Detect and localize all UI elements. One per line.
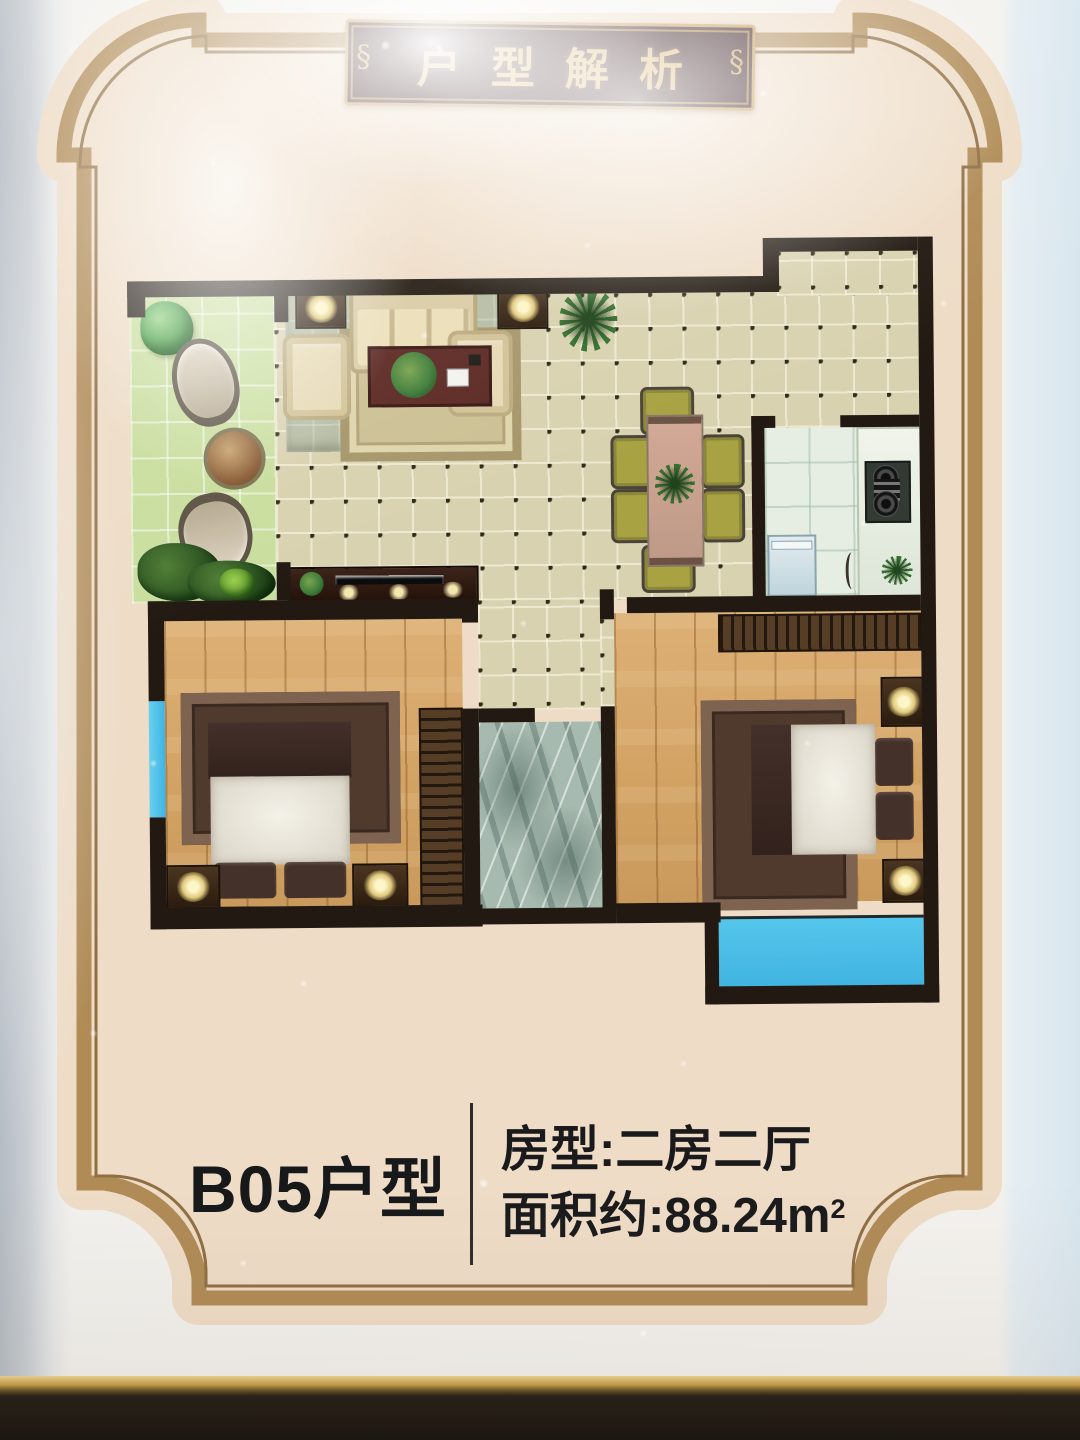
wall xyxy=(705,984,939,1004)
nightstand-lamp xyxy=(882,859,927,903)
floor-plan xyxy=(127,224,940,1015)
wall xyxy=(627,595,921,614)
armchair xyxy=(282,334,351,421)
burner xyxy=(873,491,899,517)
wall xyxy=(127,281,145,317)
plan-specs: 房型:二房二厅 面积约:88.24m2 xyxy=(479,1118,846,1249)
door-swing xyxy=(845,552,858,589)
coffee-table xyxy=(368,345,493,407)
glow xyxy=(388,584,410,600)
glow xyxy=(442,582,464,598)
wall xyxy=(600,589,614,619)
table-items xyxy=(469,354,481,365)
banner-scroll-left-icon: § xyxy=(356,42,371,72)
wall xyxy=(150,904,482,929)
television xyxy=(336,575,444,585)
area-line: 面积约:88.24m2 xyxy=(501,1184,846,1250)
wall xyxy=(465,907,617,924)
pillow xyxy=(875,738,913,786)
bed-duvet xyxy=(210,776,350,865)
bathroom xyxy=(479,721,603,908)
nightstand-lamp xyxy=(352,863,408,907)
pillow xyxy=(876,792,914,840)
wall xyxy=(274,280,288,322)
wardrobe xyxy=(718,613,922,653)
window xyxy=(149,701,166,817)
plan-label: B05户型 房型:二房二厅 面积约:88.24m2 xyxy=(168,1100,908,1268)
dining-chair xyxy=(700,434,744,488)
banner-scroll-right-icon: § xyxy=(729,48,744,78)
pillow xyxy=(284,862,346,899)
wall xyxy=(751,416,766,598)
nightstand-lamp xyxy=(881,677,926,727)
page-title: 户型解析 xyxy=(387,31,714,100)
entry-floor-notch xyxy=(777,251,918,296)
title-banner: § 户型解析 § xyxy=(344,19,755,111)
wall xyxy=(777,237,918,252)
wardrobe xyxy=(419,708,465,910)
double-bed xyxy=(208,722,351,779)
table-items xyxy=(447,369,469,387)
poster-photo: § 户型解析 § xyxy=(0,0,1080,1440)
kitchen-plant xyxy=(881,556,912,585)
dining-chair xyxy=(701,488,745,542)
poster-bottom-edge xyxy=(0,1376,1080,1440)
glow xyxy=(338,585,360,601)
potted-plant xyxy=(559,287,618,352)
cabinet-plant xyxy=(300,572,324,596)
bed-duvet xyxy=(791,724,876,855)
potted-plants xyxy=(220,568,256,598)
divider xyxy=(470,1103,473,1265)
table-centerpiece-plant xyxy=(655,464,695,504)
stove xyxy=(865,461,912,523)
room-type: 房型:二房二厅 xyxy=(501,1118,846,1184)
pillow xyxy=(214,862,276,899)
wall xyxy=(463,708,481,924)
hallway xyxy=(478,599,601,710)
wall xyxy=(479,708,535,722)
wall xyxy=(148,601,165,701)
wall xyxy=(276,562,290,600)
round-table xyxy=(203,427,266,490)
wall xyxy=(601,706,617,921)
wall xyxy=(840,415,919,428)
wall xyxy=(148,598,478,621)
table-plant xyxy=(391,352,437,398)
double-bed xyxy=(751,725,792,855)
refrigerator xyxy=(767,535,817,597)
dining-table xyxy=(648,417,702,565)
wall xyxy=(751,416,775,428)
unit-name: B05户型 xyxy=(168,1136,468,1232)
tv-cabinet xyxy=(288,565,479,603)
bedroom-2-doorway xyxy=(600,619,615,706)
nightstand-lamp xyxy=(166,865,220,909)
south-balcony xyxy=(719,915,925,992)
wall xyxy=(462,598,478,622)
